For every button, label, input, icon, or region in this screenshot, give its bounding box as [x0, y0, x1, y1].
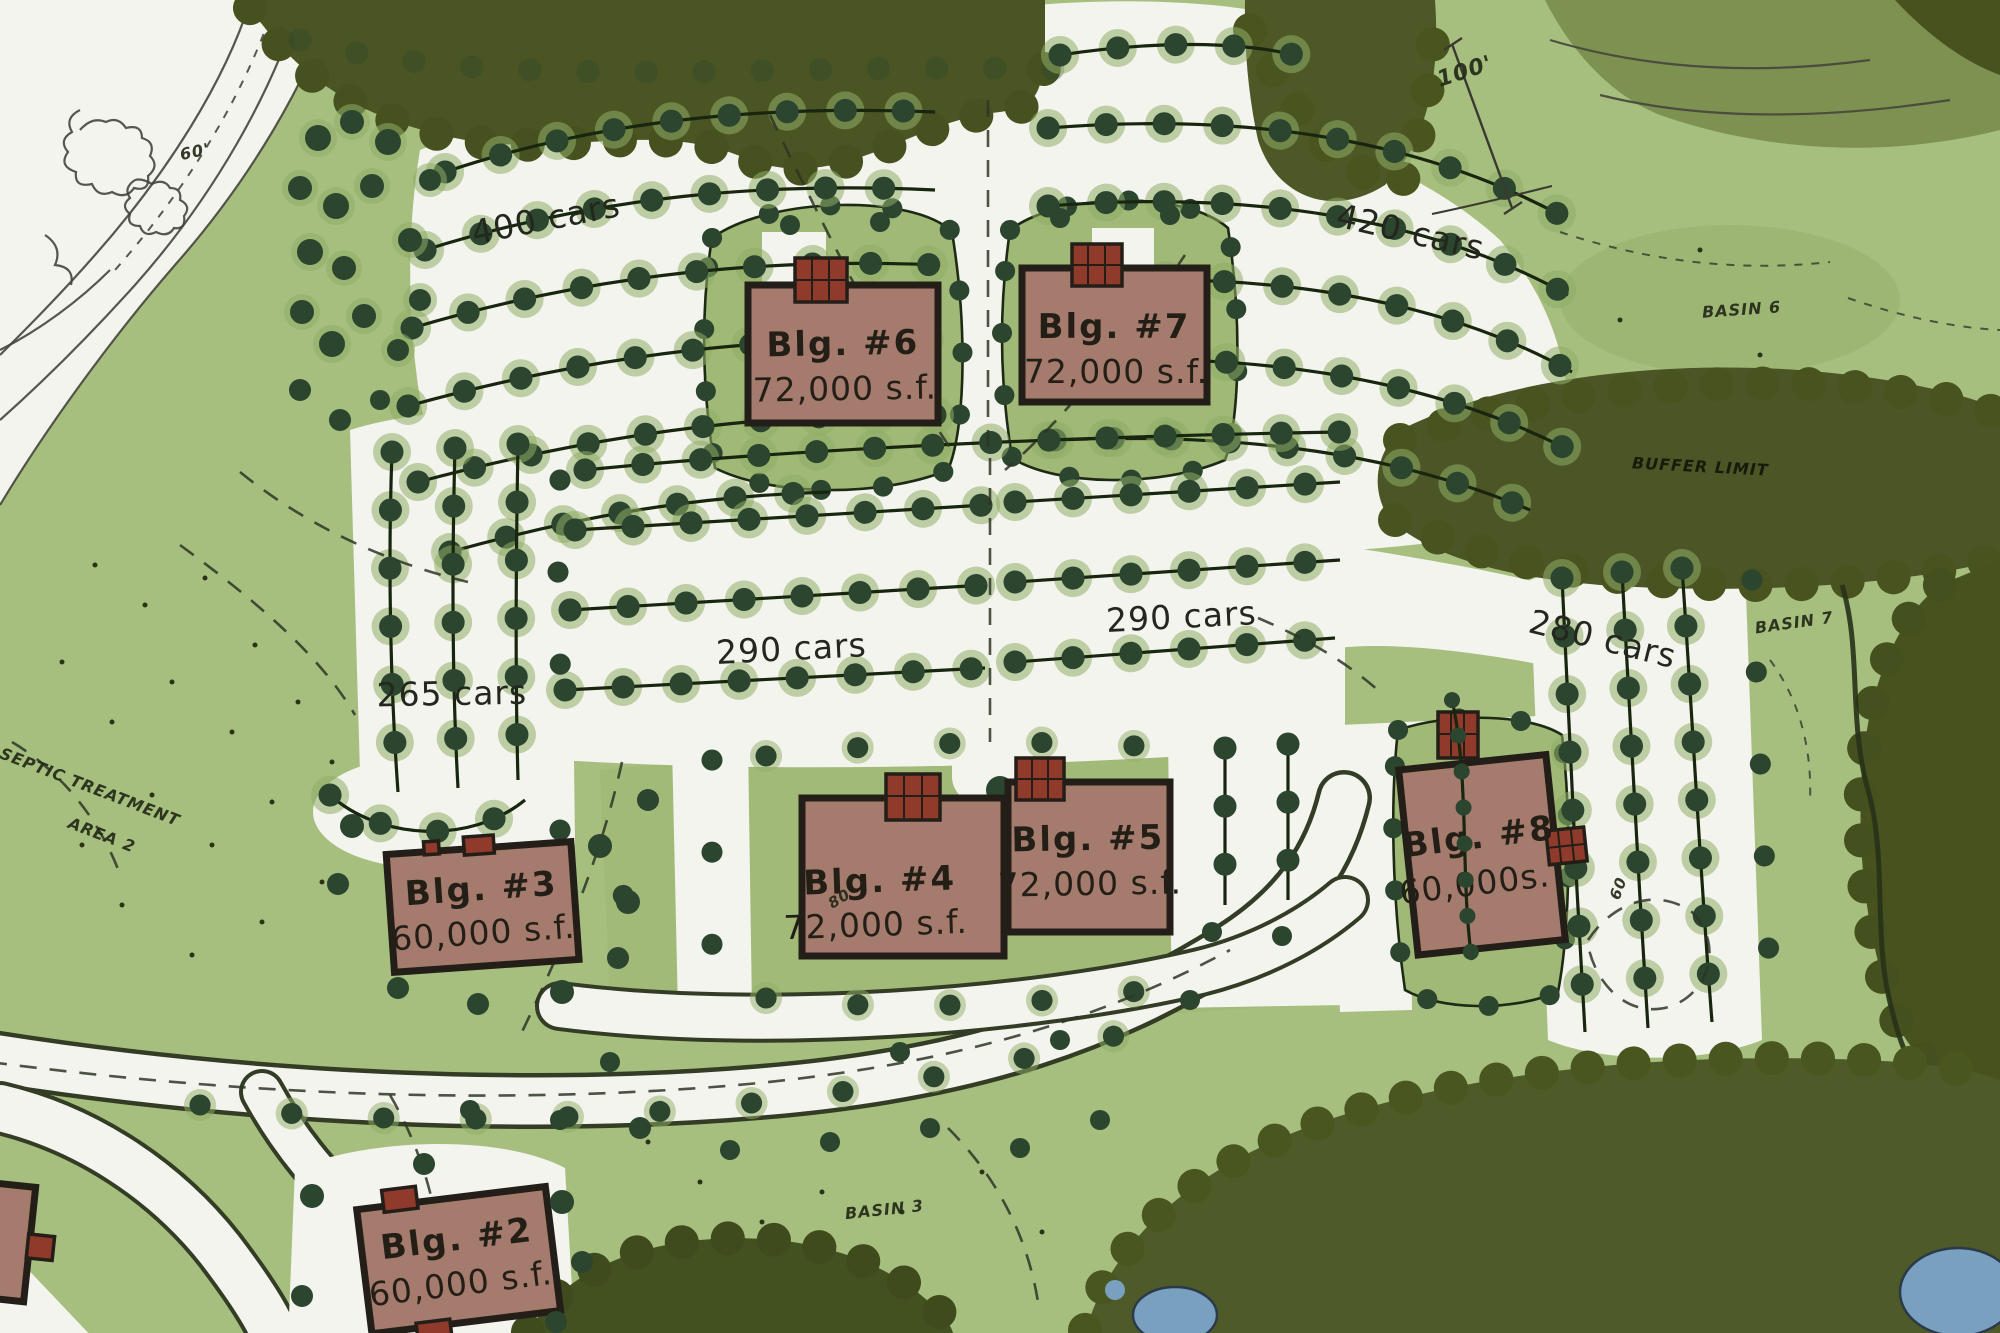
building-3: Blg. #3 60,000 s.f. — [385, 830, 579, 973]
building-7: Blg. #7 72,000 s.f. — [1022, 244, 1208, 402]
pond-south — [1133, 1287, 1217, 1333]
building-7-name-label: Blg. #7 — [1038, 307, 1191, 347]
building-2-core — [382, 1186, 418, 1212]
parking-label-265-cars: 265 cars — [376, 673, 527, 715]
building-6-size-label: 72,000 s.f. — [752, 367, 937, 409]
building-5: Blg. #5 72,000 s.f. — [997, 758, 1182, 932]
site-plan-map: Blg. #6 72,000 s.f. Blg. #7 72,000 s.f. … — [0, 0, 2000, 1333]
building-6: Blg. #6 72,000 s.f. — [748, 258, 938, 423]
parking-label-290-cars-east: 290 cars — [1105, 593, 1257, 640]
site-plan-canvas: Blg. #6 72,000 s.f. Blg. #7 72,000 s.f. … — [0, 0, 2000, 1333]
building-4: Blg. #4 72,000 s.f. — [783, 774, 1004, 956]
building-4-size-label: 72,000 s.f. — [783, 902, 969, 947]
building-3-core — [463, 835, 494, 855]
building-6-name-label: Blg. #6 — [766, 323, 919, 366]
building-7-size-label: 72,000 s.f. — [1024, 352, 1208, 391]
parking-label-290-cars-west: 290 cars — [715, 625, 867, 672]
building-2: Blg. #2 60,000 s.f. — [355, 1171, 562, 1333]
building-5-size-label: 72,000 s.f. — [997, 862, 1182, 904]
building-5-name-label: Blg. #5 — [1011, 818, 1164, 861]
